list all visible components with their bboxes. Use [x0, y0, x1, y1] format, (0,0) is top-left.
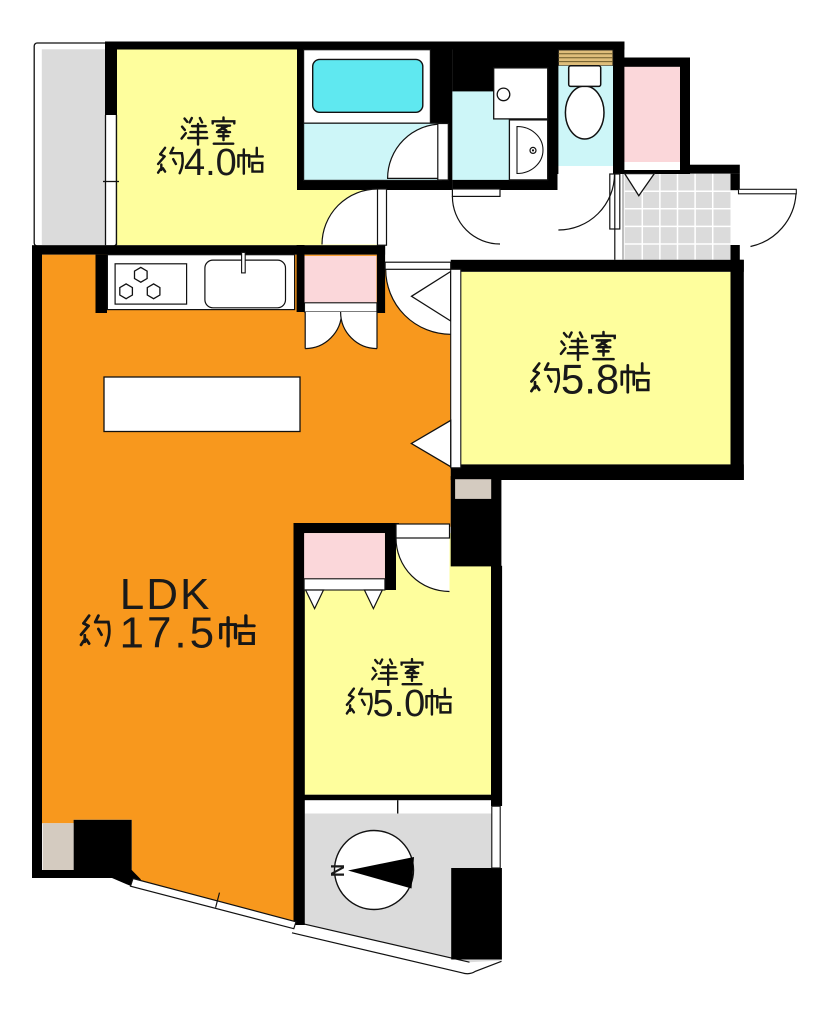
svg-text:4.0: 4.0 — [184, 142, 237, 184]
svg-text:5.8: 5.8 — [561, 356, 619, 403]
svg-text:N: N — [328, 864, 348, 877]
svg-text:5.0: 5.0 — [372, 683, 425, 725]
svg-text:17.5: 17.5 — [119, 608, 217, 657]
